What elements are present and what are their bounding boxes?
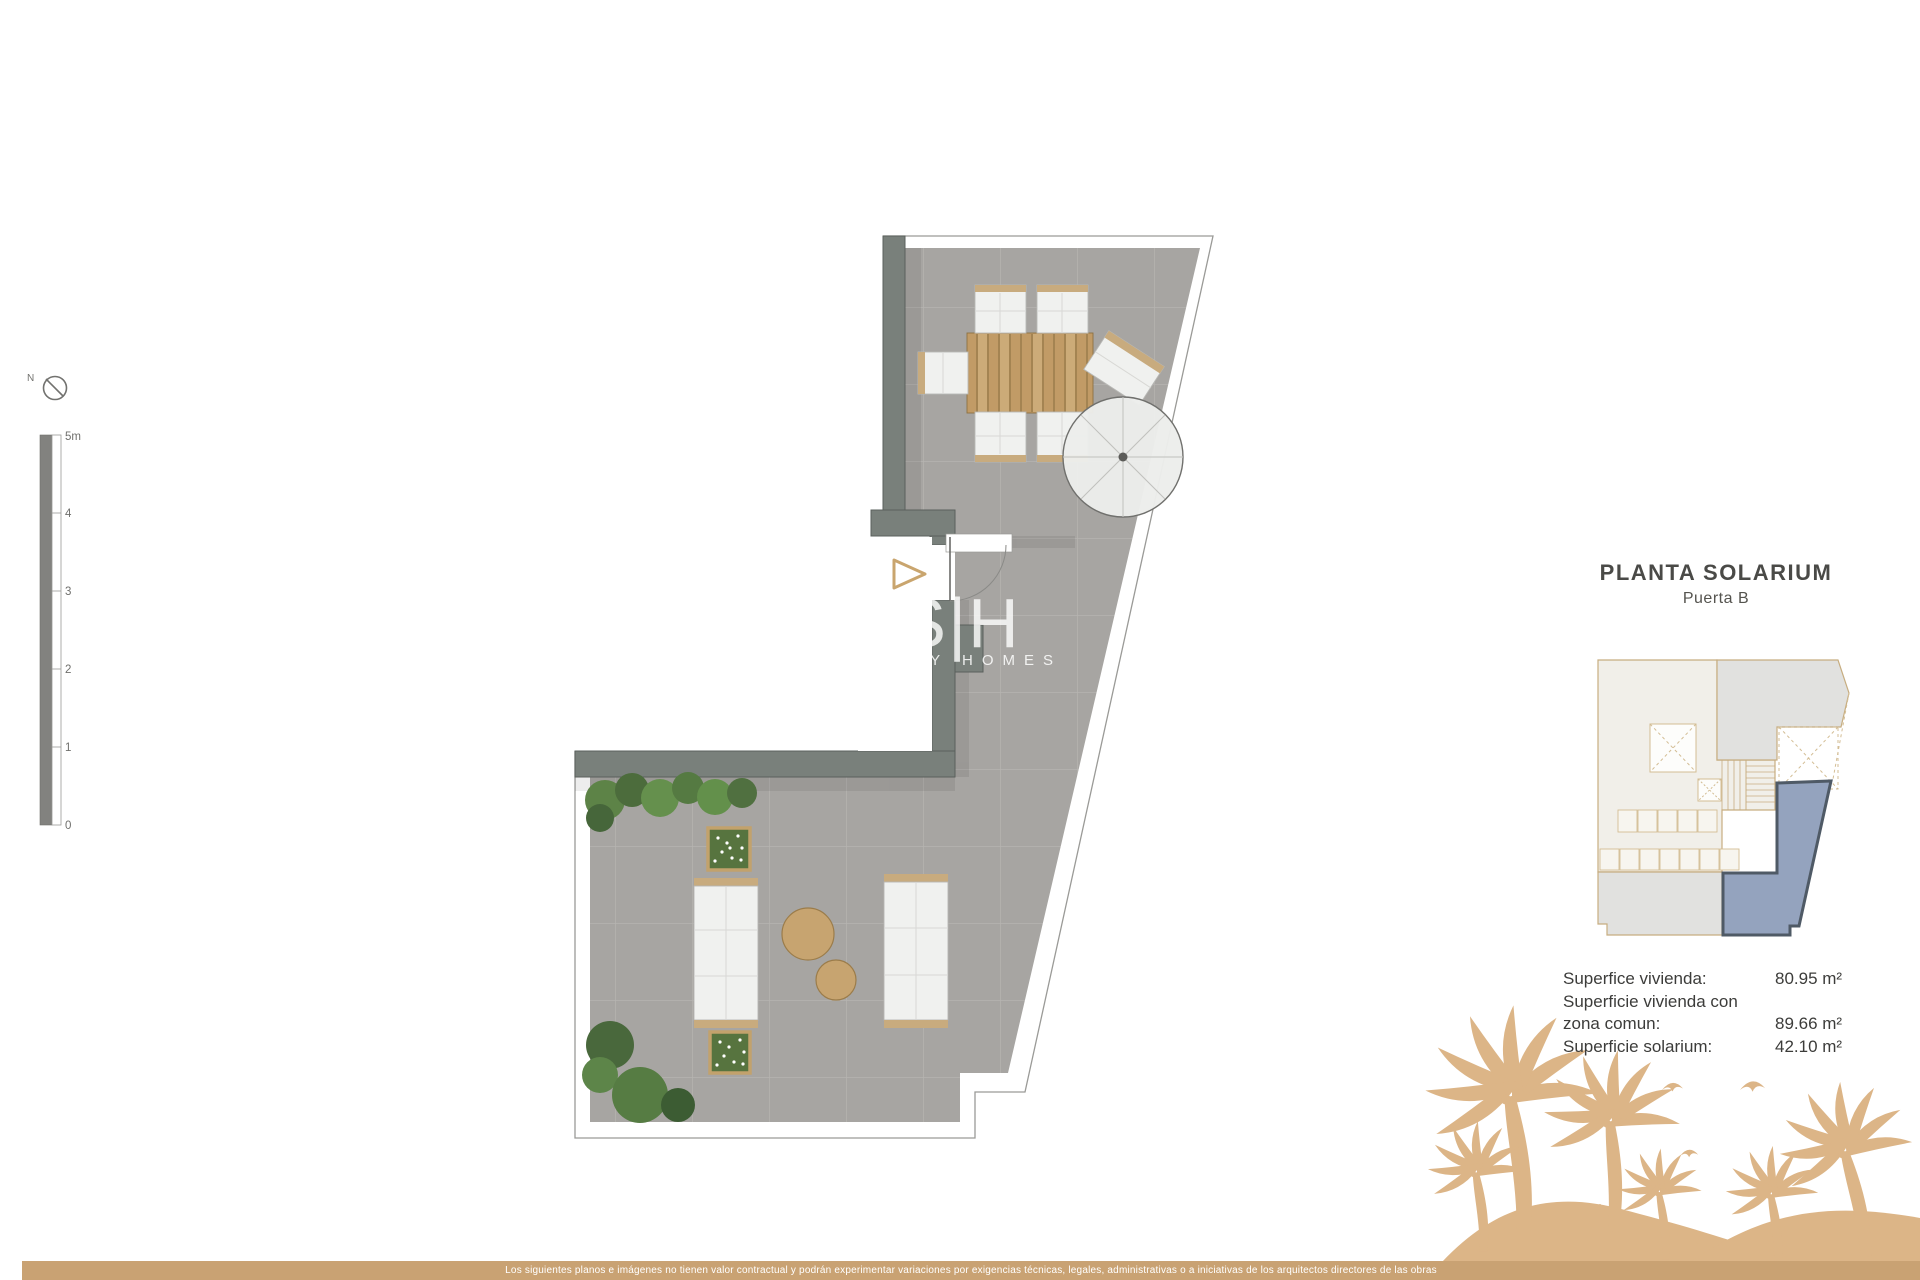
area-label: Superficie vivienda con (1563, 991, 1738, 1014)
sun-lounger (975, 412, 1026, 462)
planter (708, 828, 750, 870)
areas-table: Superfice vivienda: 80.95 m² Superficie … (1563, 968, 1863, 1058)
area-value: 80.95 m² (1775, 968, 1863, 991)
svg-text:2: 2 (65, 664, 71, 676)
area-value: 89.66 m² (1775, 1013, 1863, 1036)
dune (1690, 1211, 1920, 1262)
sofa (694, 878, 758, 1028)
area-label: Superfice vivienda: (1563, 968, 1707, 991)
area-row: zona comun: 89.66 m² (1563, 1013, 1863, 1036)
planter (710, 1032, 750, 1073)
coffee-table (782, 908, 834, 960)
area-row: Superficie solarium: 42.10 m² (1563, 1036, 1863, 1059)
disclaimer-bar: Los siguientes planos e imágenes no tien… (22, 1261, 1920, 1280)
svg-text:1: 1 (65, 742, 71, 754)
parasol (1063, 397, 1183, 517)
area-value (1775, 991, 1863, 1014)
page-subtitle: Puerta B (1560, 590, 1872, 608)
scale-bar: 5m 4 3 2 1 0 (40, 431, 81, 832)
page-title: PLANTA SOLARIUM (1560, 560, 1872, 586)
area-label: zona comun: (1563, 1013, 1660, 1036)
key-plan (1598, 660, 1849, 935)
area-value: 42.10 m² (1775, 1036, 1863, 1059)
svg-text:4: 4 (65, 508, 72, 520)
sofa (884, 874, 948, 1028)
interior-landing (932, 545, 955, 600)
floor-plan-canvas: N 5m 4 3 2 1 0 (0, 0, 1920, 1280)
dining-table (967, 333, 1093, 413)
sun-lounger (975, 285, 1026, 333)
key-plan-roof-gray (1598, 872, 1722, 935)
side-chair (918, 352, 968, 394)
key-plan-roof-gray (1717, 660, 1849, 760)
svg-text:5m: 5m (65, 431, 81, 443)
area-row: Superficie vivienda con (1563, 991, 1863, 1014)
svg-text:0: 0 (65, 820, 71, 832)
svg-text:N: N (27, 373, 34, 384)
coffee-table (816, 960, 856, 1000)
title-block: PLANTA SOLARIUM Puerta B (1560, 560, 1872, 608)
sun-lounger (1037, 285, 1088, 333)
area-row: Superfice vivienda: 80.95 m² (1563, 968, 1863, 991)
area-label: Superficie solarium: (1563, 1036, 1712, 1059)
floor-plan (575, 236, 1213, 1138)
north-compass-icon: N (27, 373, 67, 400)
disclaimer-text: Los siguientes planos e imágenes no tien… (505, 1265, 1437, 1276)
plan-sheet: N 5m 4 3 2 1 0 (0, 0, 1920, 1280)
svg-text:3: 3 (65, 586, 71, 598)
